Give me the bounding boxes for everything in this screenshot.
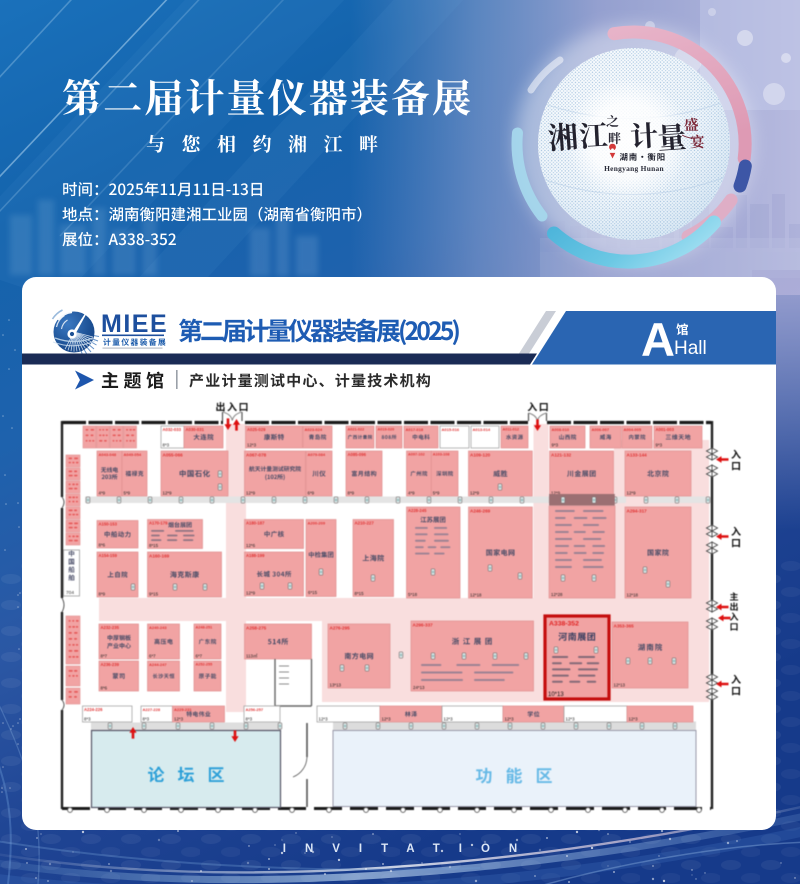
svg-text:12*3: 12*3 xyxy=(566,717,576,722)
svg-text:8*6: 8*6 xyxy=(101,686,108,691)
svg-text:9*15: 9*15 xyxy=(149,592,159,597)
svg-text:A085-096: A085-096 xyxy=(348,452,367,457)
svg-text:12*3: 12*3 xyxy=(444,717,454,722)
svg-text:Hengyang Hunan: Hengyang Hunan xyxy=(604,164,664,173)
svg-text:12*28: 12*28 xyxy=(551,592,563,597)
svg-text:A067-078: A067-078 xyxy=(246,452,267,457)
svg-text:A296-337: A296-337 xyxy=(413,622,434,627)
svg-text:9*3: 9*3 xyxy=(656,443,663,448)
svg-text:A224-226: A224-226 xyxy=(84,707,103,712)
svg-text:A276-295: A276-295 xyxy=(330,625,351,630)
svg-text:12*9: 12*9 xyxy=(627,491,637,496)
svg-text:A232-235: A232-235 xyxy=(101,625,120,630)
svg-text:Hall: Hall xyxy=(674,338,707,359)
svg-text:A227-228: A227-228 xyxy=(143,707,161,712)
svg-text:A252-255: A252-255 xyxy=(196,663,213,667)
svg-text:8*3: 8*3 xyxy=(143,717,150,722)
svg-text:5*9: 5*9 xyxy=(124,491,131,496)
svg-text:12*3: 12*3 xyxy=(382,717,392,722)
svg-text:12*6: 12*6 xyxy=(246,543,256,548)
svg-text:A236-239: A236-239 xyxy=(101,662,120,667)
svg-text:6*7: 6*7 xyxy=(149,654,156,659)
svg-text:10*13: 10*13 xyxy=(548,692,564,698)
svg-text:6*15: 6*15 xyxy=(308,590,318,595)
svg-text:113㎡: 113㎡ xyxy=(246,653,258,659)
svg-text:12*9: 12*9 xyxy=(470,491,480,496)
svg-text:8*3: 8*3 xyxy=(163,443,170,448)
svg-text:A229-231: A229-231 xyxy=(174,707,192,712)
svg-text:A240-243: A240-243 xyxy=(149,625,167,630)
svg-text:A246-269: A246-269 xyxy=(470,508,491,513)
svg-text:A030-031: A030-031 xyxy=(186,427,205,432)
svg-text:A023-024: A023-024 xyxy=(305,427,323,432)
svg-text:12*9: 12*9 xyxy=(246,491,256,496)
svg-text:A188-199: A188-199 xyxy=(246,553,265,558)
svg-text:A109-120: A109-120 xyxy=(470,452,491,457)
svg-text:8*9: 8*9 xyxy=(99,592,106,597)
svg-text:8*6: 8*6 xyxy=(99,543,106,548)
svg-text:A200-209: A200-209 xyxy=(308,520,326,525)
svg-text:A015-016: A015-016 xyxy=(442,427,460,432)
svg-text:13*13: 13*13 xyxy=(330,683,342,688)
svg-text:12*3: 12*3 xyxy=(319,717,329,722)
svg-text:A258-275: A258-275 xyxy=(246,625,267,630)
svg-text:12*9: 12*9 xyxy=(246,591,256,596)
svg-text:A121-132: A121-132 xyxy=(551,452,572,457)
svg-text:8*3: 8*3 xyxy=(246,717,253,722)
svg-text:A006-007: A006-007 xyxy=(592,427,610,432)
svg-text:A032-033: A032-033 xyxy=(163,427,182,432)
svg-text:A: A xyxy=(641,313,675,366)
svg-text:A008-010: A008-010 xyxy=(552,427,570,432)
svg-text:5*9: 5*9 xyxy=(433,491,440,496)
svg-text:A154-159: A154-159 xyxy=(99,553,118,558)
svg-text:A019-020: A019-020 xyxy=(378,428,395,432)
svg-text:MIEE: MIEE xyxy=(101,310,168,338)
svg-text:A097-102: A097-102 xyxy=(408,453,425,457)
svg-text:A055-066: A055-066 xyxy=(163,452,184,457)
svg-text:A043-048: A043-048 xyxy=(99,452,117,457)
svg-text:A294-317: A294-317 xyxy=(627,508,648,513)
svg-text:A170-179: A170-179 xyxy=(149,521,168,526)
svg-text:A160-169: A160-169 xyxy=(149,553,170,558)
svg-text:A001-003: A001-003 xyxy=(656,427,675,432)
svg-text:8*15: 8*15 xyxy=(149,543,159,548)
svg-text:12*18: 12*18 xyxy=(470,593,482,598)
svg-text:12*13: 12*13 xyxy=(614,683,626,688)
svg-text:8*7: 8*7 xyxy=(101,654,108,659)
svg-text:8*3: 8*3 xyxy=(84,717,91,722)
svg-text:A017-018: A017-018 xyxy=(406,427,424,432)
svg-text:A150-153: A150-153 xyxy=(99,522,118,527)
svg-text:A338-352: A338-352 xyxy=(549,621,579,628)
svg-text:A103-108: A103-108 xyxy=(433,453,450,457)
svg-text:A021-022: A021-022 xyxy=(348,428,365,432)
svg-text:8*15: 8*15 xyxy=(355,591,365,596)
svg-text:12*18: 12*18 xyxy=(627,593,639,598)
svg-text:A011-012: A011-012 xyxy=(503,428,519,432)
svg-text:A049-054: A049-054 xyxy=(124,452,142,457)
svg-text:A079-084: A079-084 xyxy=(308,452,326,457)
svg-text:8*9: 8*9 xyxy=(348,491,355,496)
svg-text:A180-187: A180-187 xyxy=(246,521,265,526)
svg-text:704: 704 xyxy=(66,590,74,596)
svg-text:12*3: 12*3 xyxy=(174,717,184,722)
svg-text:A133-144: A133-144 xyxy=(627,452,648,457)
svg-text:12*9: 12*9 xyxy=(163,491,173,496)
svg-text:5*18: 5*18 xyxy=(408,592,418,597)
svg-text:A244-247: A244-247 xyxy=(149,662,167,667)
svg-text:12*3: 12*3 xyxy=(247,443,257,448)
svg-text:A256-257: A256-257 xyxy=(246,707,264,712)
svg-text:A248-251: A248-251 xyxy=(196,626,213,630)
svg-text:4*9: 4*9 xyxy=(99,491,106,496)
svg-text:12*3: 12*3 xyxy=(629,717,639,722)
svg-text:A013-014: A013-014 xyxy=(473,427,491,432)
svg-text:6*7: 6*7 xyxy=(196,654,203,659)
svg-text:A353-365: A353-365 xyxy=(614,623,635,628)
svg-text:A025-029: A025-029 xyxy=(247,427,266,432)
svg-text:12*3: 12*3 xyxy=(505,717,515,722)
svg-text:6*9: 6*9 xyxy=(308,491,315,496)
svg-text:9*3: 9*3 xyxy=(552,443,559,448)
svg-text:A210-227: A210-227 xyxy=(355,521,375,526)
svg-text:4*9: 4*9 xyxy=(408,491,415,496)
svg-text:24*13: 24*13 xyxy=(413,685,425,690)
svg-text:A228-245: A228-245 xyxy=(408,508,427,513)
svg-text:A004-005: A004-005 xyxy=(624,427,642,432)
